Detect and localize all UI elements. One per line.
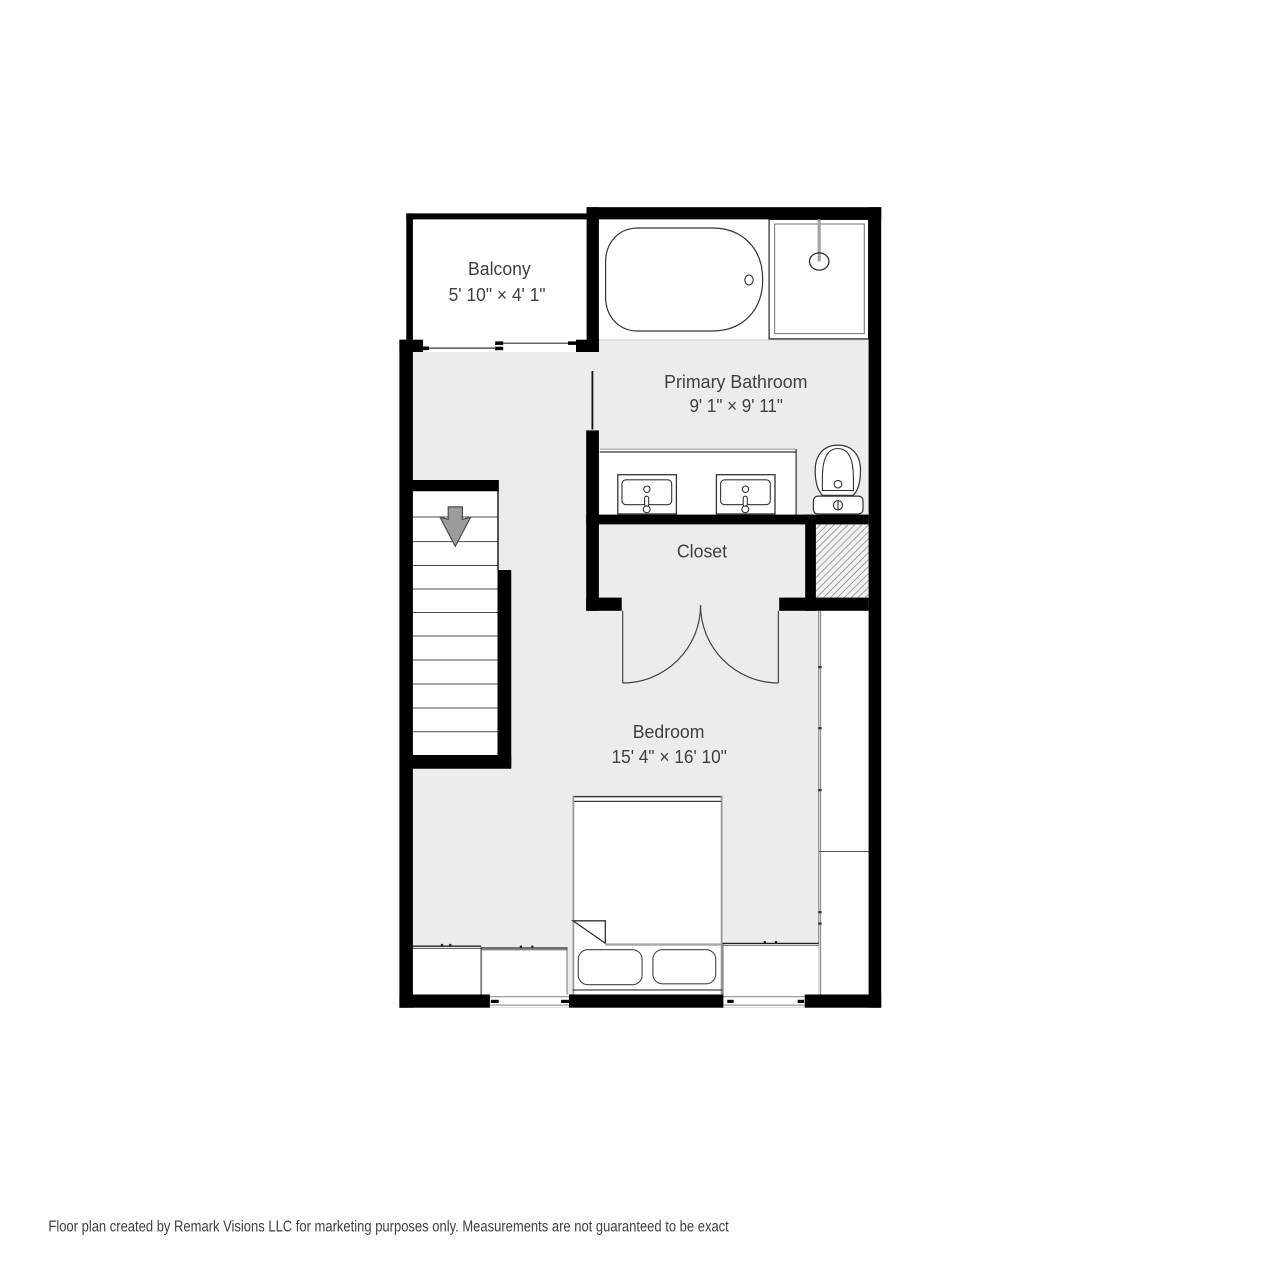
svg-text:Balcony: Balcony: [468, 258, 531, 279]
svg-text:Bedroom: Bedroom: [633, 721, 705, 742]
svg-text:Closet: Closet: [677, 541, 728, 562]
svg-text:Floor plan created by Remark V: Floor plan created by Remark Visions LLC…: [48, 1219, 729, 1236]
svg-text:5' 10" × 4' 1": 5' 10" × 4' 1": [449, 284, 546, 305]
svg-text:15' 4" × 16' 10": 15' 4" × 16' 10": [612, 746, 727, 767]
svg-text:9' 1" × 9' 11": 9' 1" × 9' 11": [689, 395, 783, 416]
svg-text:Primary Bathroom: Primary Bathroom: [664, 371, 807, 392]
